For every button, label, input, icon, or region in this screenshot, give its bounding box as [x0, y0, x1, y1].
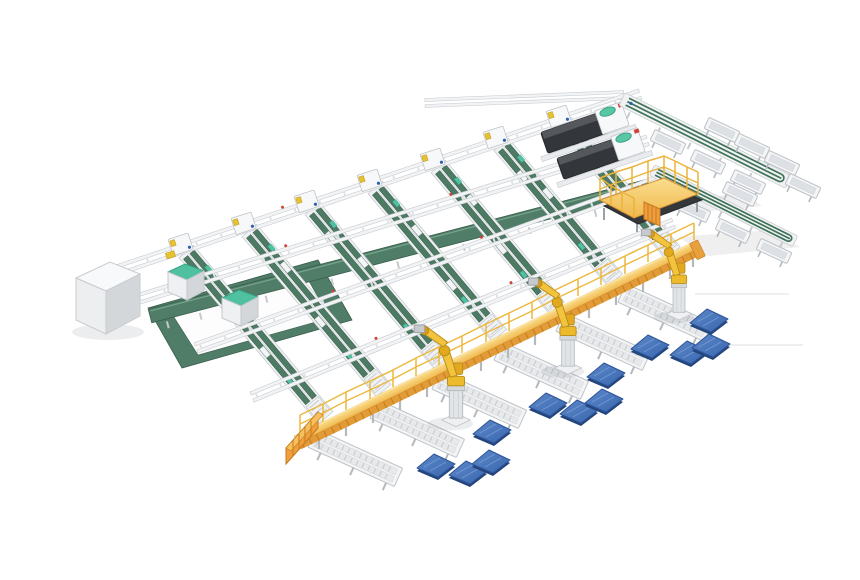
pallet-2 — [417, 454, 455, 480]
pallet-8 — [587, 363, 625, 389]
outfeed-tray-4 — [783, 173, 821, 204]
carrier-on-rail — [165, 251, 175, 259]
factory-scene-svg: Automated conveyor sorting and robotic p… — [0, 0, 860, 580]
control-cabinet — [72, 262, 144, 340]
pallet-1 — [473, 420, 511, 446]
outfeed-spine-upper — [617, 93, 792, 193]
factory-render: Automated conveyor sorting and robotic p… — [0, 0, 860, 580]
